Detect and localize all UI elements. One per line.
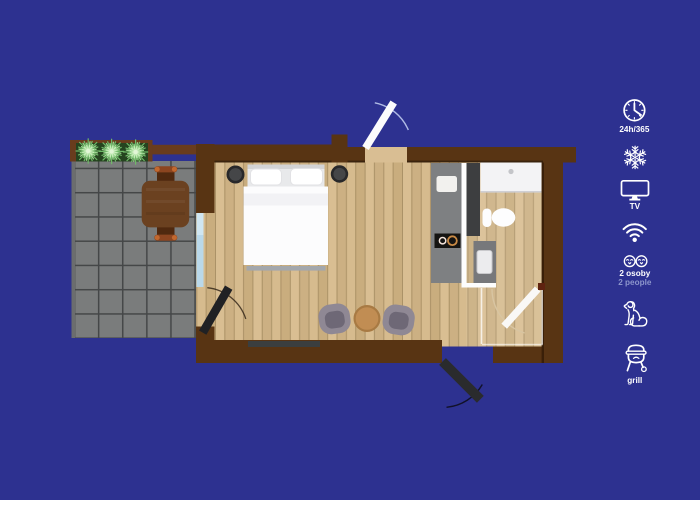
- svg-text:grill: grill: [627, 376, 642, 385]
- svg-text:24h/365: 24h/365: [619, 125, 649, 134]
- svg-text:TV: TV: [630, 202, 641, 211]
- svg-text:2 osoby: 2 osoby: [619, 269, 650, 278]
- svg-text:2 people: 2 people: [618, 278, 652, 287]
